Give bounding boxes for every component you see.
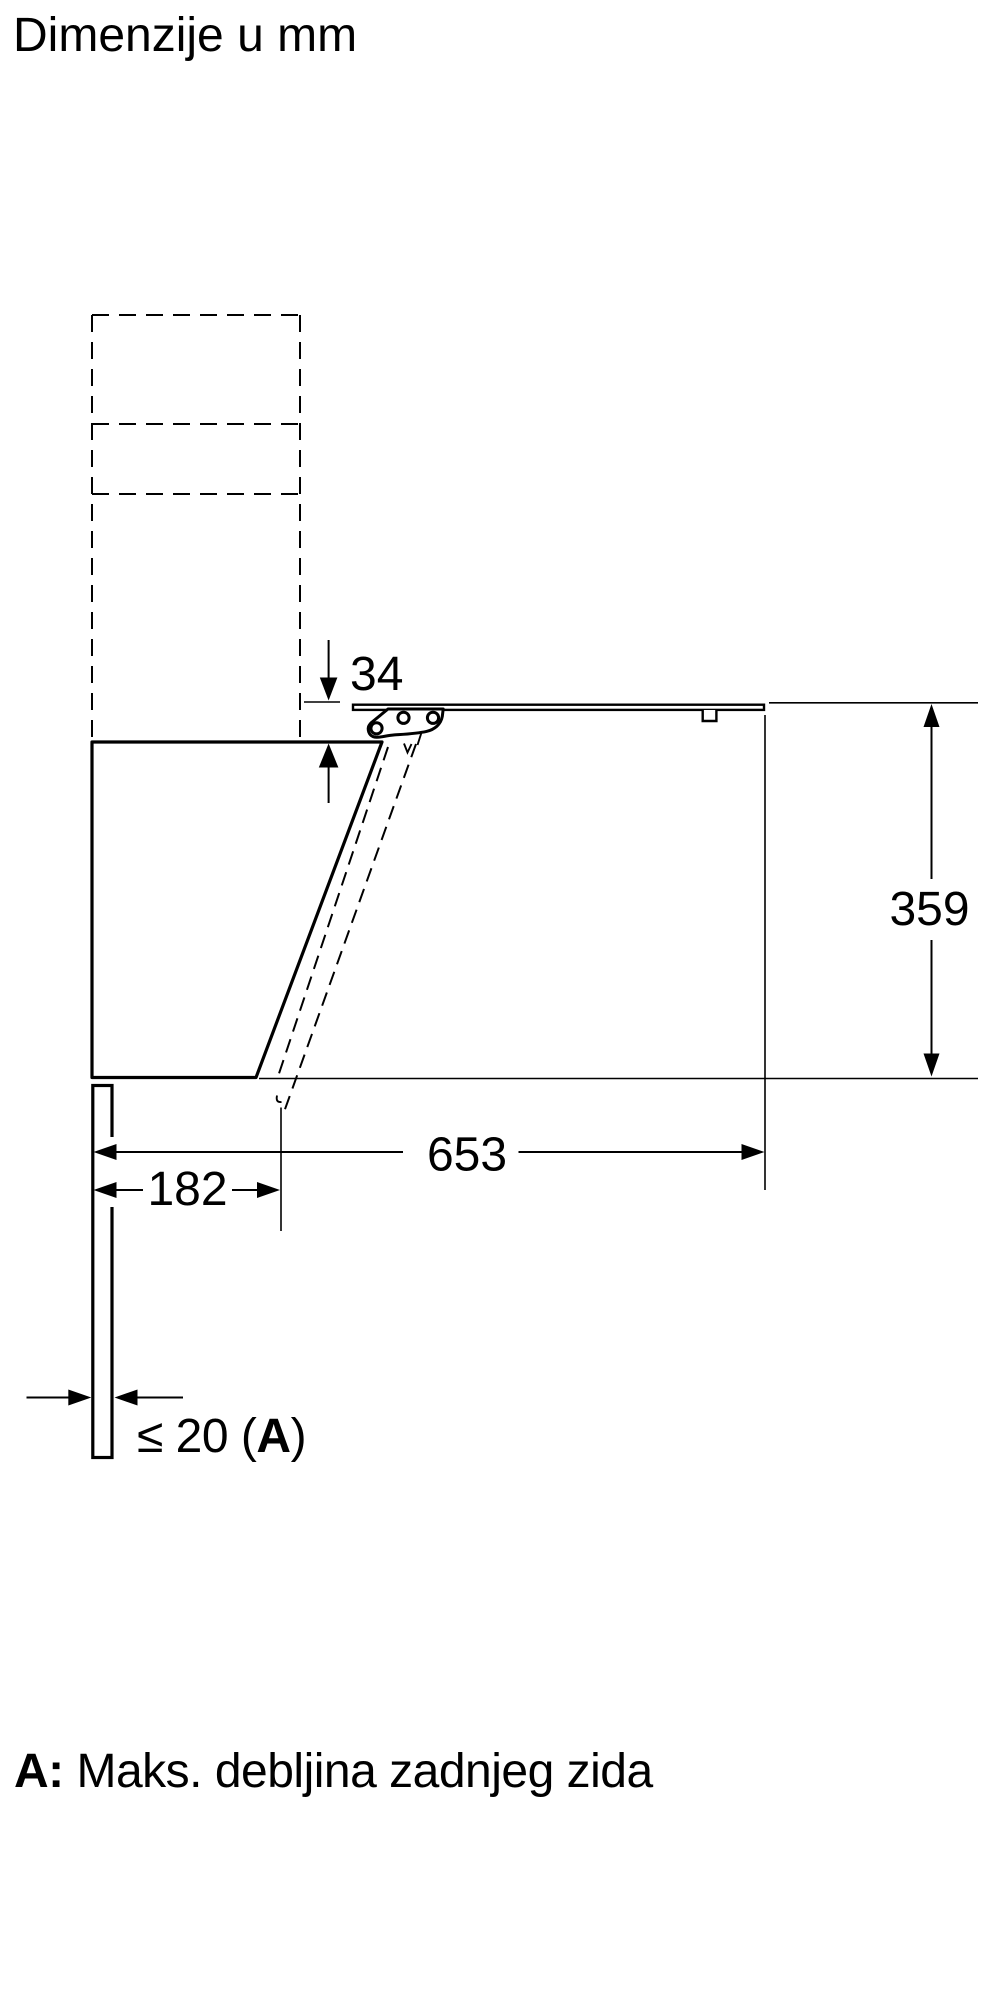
svg-text:359: 359 [889,883,969,936]
svg-text:34: 34 [350,648,403,701]
svg-text:≤ 20 (A): ≤ 20 (A) [137,1410,306,1463]
svg-text:Dimenzije u mm: Dimenzije u mm [13,9,357,62]
svg-text:182: 182 [147,1163,227,1216]
svg-text:653: 653 [427,1129,507,1182]
svg-text:A: Maks. debljina zadnjeg zida: A: Maks. debljina zadnjeg zida [14,1745,653,1798]
